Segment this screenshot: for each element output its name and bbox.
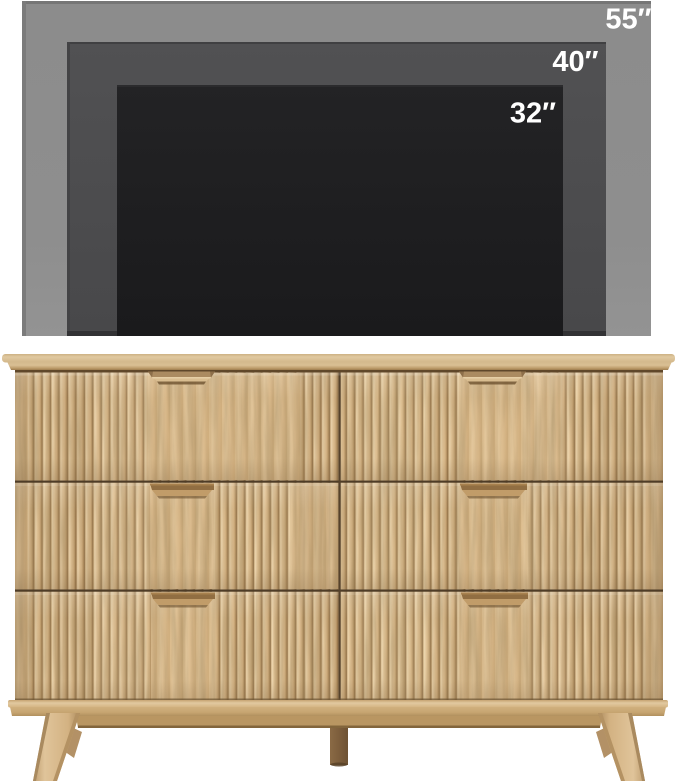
svg-text:55″: 55″: [605, 4, 651, 36]
svg-text:32″: 32″: [510, 98, 556, 130]
svg-text:40″: 40″: [552, 46, 598, 78]
